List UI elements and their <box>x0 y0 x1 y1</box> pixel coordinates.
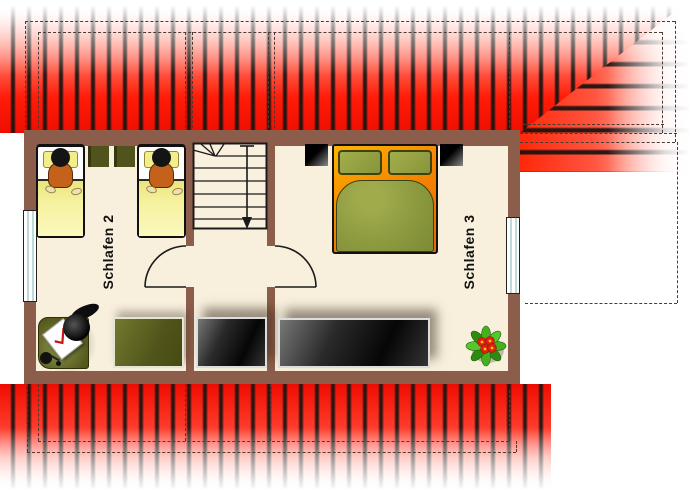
nightstand-black <box>305 144 328 166</box>
hall-wall-left-lower <box>186 287 194 371</box>
window-right <box>506 217 520 294</box>
wardrobe-hall <box>196 317 267 368</box>
hidden-edge-dashed-line <box>509 32 510 133</box>
nightstand-black <box>440 144 463 166</box>
hidden-edge-dashed-line <box>520 142 675 143</box>
desk-chair-seat <box>63 314 90 341</box>
hidden-edge-dashed-line <box>192 32 193 133</box>
double-bed <box>332 144 438 254</box>
hidden-edge-dashed-line <box>38 32 662 33</box>
floor-plan: Schlafen 2 Schlafen 3 <box>0 0 700 500</box>
hidden-edge-dashed-line <box>274 32 275 133</box>
room-label-schlafen-3: Schlafen 3 <box>461 208 477 296</box>
hidden-edge-dashed-line <box>509 390 510 441</box>
wardrobe-large <box>278 318 430 368</box>
pillow <box>338 150 382 175</box>
hall-wall-right-lower <box>267 287 275 371</box>
hidden-edge-dashed-line <box>270 384 271 441</box>
person-hair <box>152 148 171 167</box>
person-hair <box>51 148 70 167</box>
hidden-edge-dashed-line <box>516 441 517 452</box>
hidden-edge-dashed-line <box>38 32 39 133</box>
hidden-edge-dashed-line <box>38 384 39 441</box>
nightstand <box>88 146 109 167</box>
single-bed-2 <box>137 144 186 238</box>
hidden-edge-dashed-line <box>675 21 676 142</box>
window-left <box>23 210 37 302</box>
hidden-edge-dashed-line <box>25 21 675 22</box>
nightstand <box>114 146 135 167</box>
blanket <box>336 180 434 252</box>
hidden-edge-dashed-line <box>525 303 677 304</box>
hidden-edge-dashed-line <box>25 21 26 133</box>
hidden-edge-dashed-line <box>523 124 664 125</box>
hall-wall-right-upper <box>267 146 275 246</box>
hidden-edge-dashed-line <box>27 452 516 453</box>
hidden-edge-dashed-line <box>677 142 678 303</box>
room-label-schlafen-2: Schlafen 2 <box>100 208 116 296</box>
pillow <box>388 150 432 175</box>
hidden-edge-dashed-line <box>520 133 677 134</box>
hidden-edge-dashed-line <box>38 441 509 442</box>
desk-lamp-base <box>56 361 61 366</box>
hidden-edge-dashed-line <box>185 32 186 133</box>
hidden-edge-dashed-line <box>185 384 186 441</box>
hidden-edge-dashed-line <box>268 32 269 133</box>
hidden-edge-dashed-line <box>27 384 28 452</box>
dresser-olive <box>113 317 184 368</box>
hidden-edge-dashed-line <box>662 32 663 133</box>
hall-wall-left-upper <box>186 146 194 246</box>
single-bed-1 <box>36 144 85 238</box>
potted-plant <box>464 324 508 368</box>
